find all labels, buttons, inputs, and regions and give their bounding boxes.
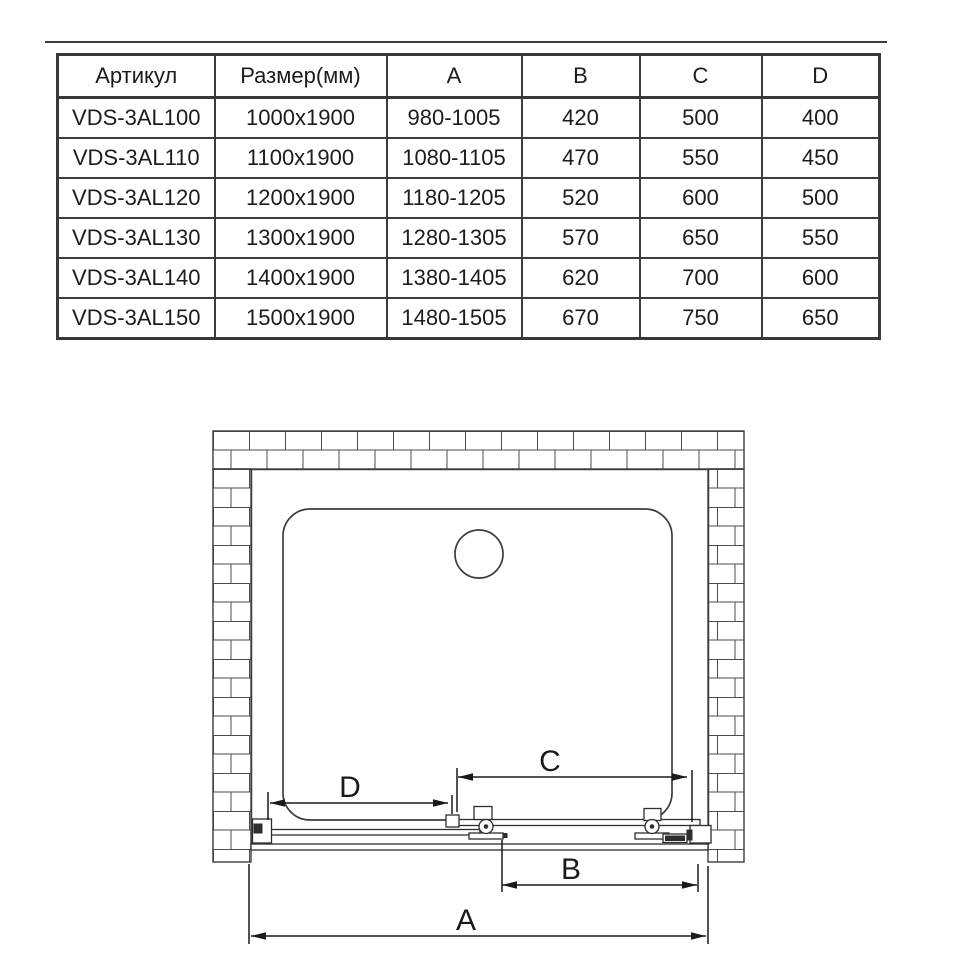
niche-outline [252,470,709,846]
wall-profile-left-clamp [254,824,263,834]
dimension-d: D [268,771,452,820]
brick-wall [213,431,744,862]
dim-label-b: B [561,853,581,886]
brick-wall-left [213,469,251,862]
roller-left-cap [474,807,492,820]
dim-label-c: C [539,745,561,778]
dim-label-d: D [339,771,361,804]
roller-right-cap [644,809,661,821]
brick-wall-right [708,469,744,862]
dim-label-a: A [456,904,476,937]
technical-drawing: C D B A [0,0,970,970]
glass-clamp [665,836,685,842]
dimension-a: A [249,864,708,944]
bottom-sill [251,844,708,850]
wall-profile-right [690,826,711,844]
panel-datum-clamp [503,833,508,838]
wall-profile-right-clamp [687,830,693,841]
roller-left-axle [484,824,489,829]
door-assembly [251,807,711,851]
drain-circle [455,530,503,578]
brick-wall-top [213,431,744,469]
roller-right-axle [650,824,655,829]
rail-end-cap [446,815,459,827]
fixed-panel [256,830,480,836]
